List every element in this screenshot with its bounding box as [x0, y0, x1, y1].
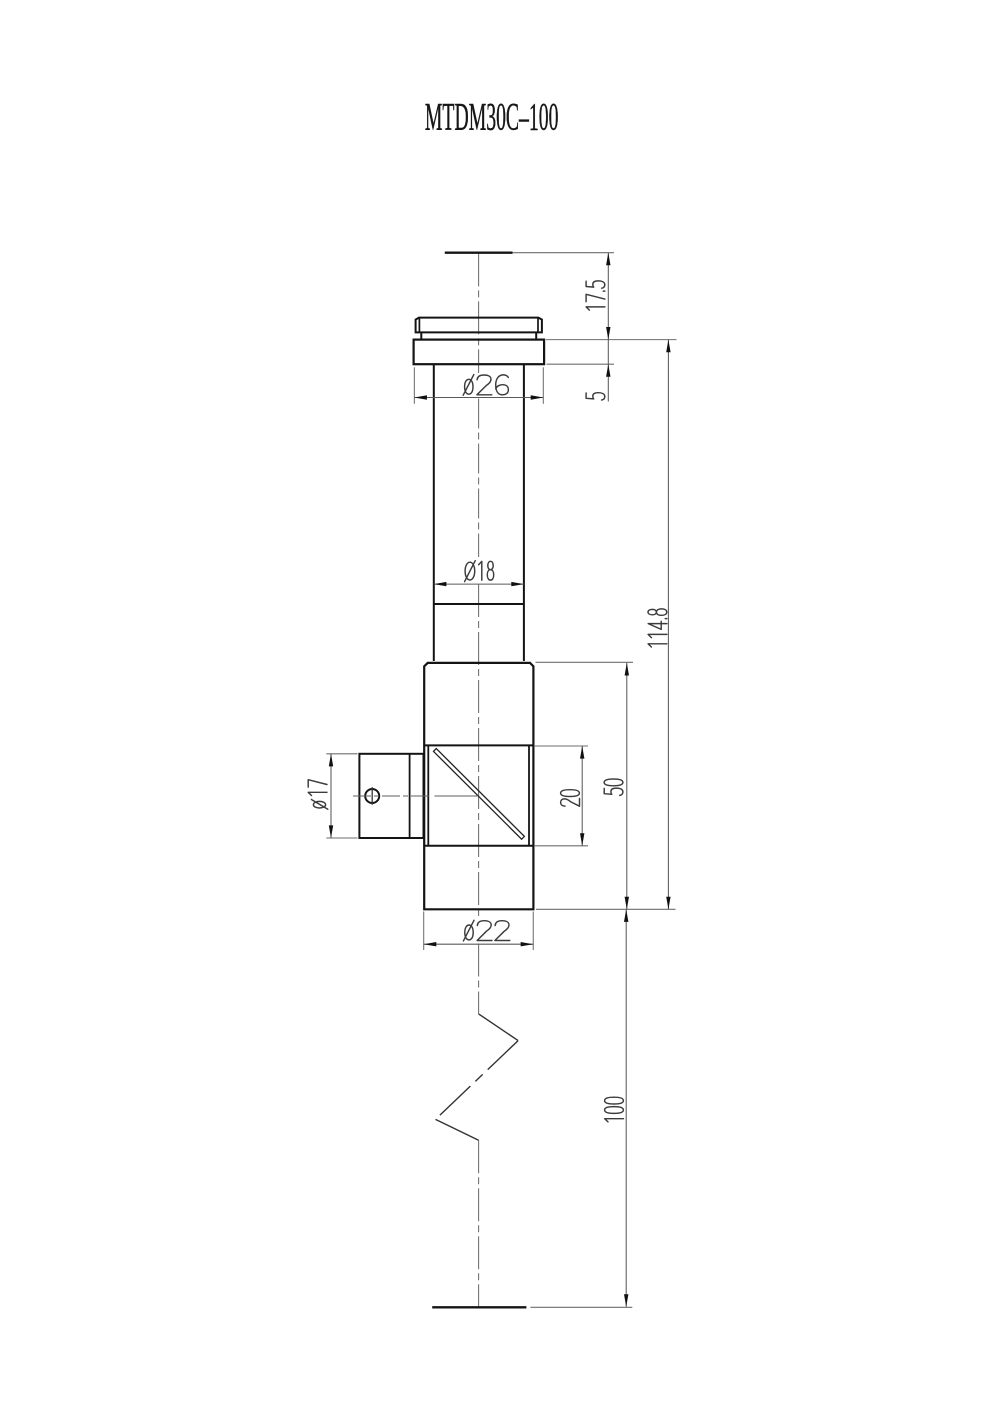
svg-text:MTDM30C–100: MTDM30C–100 [425, 95, 559, 138]
